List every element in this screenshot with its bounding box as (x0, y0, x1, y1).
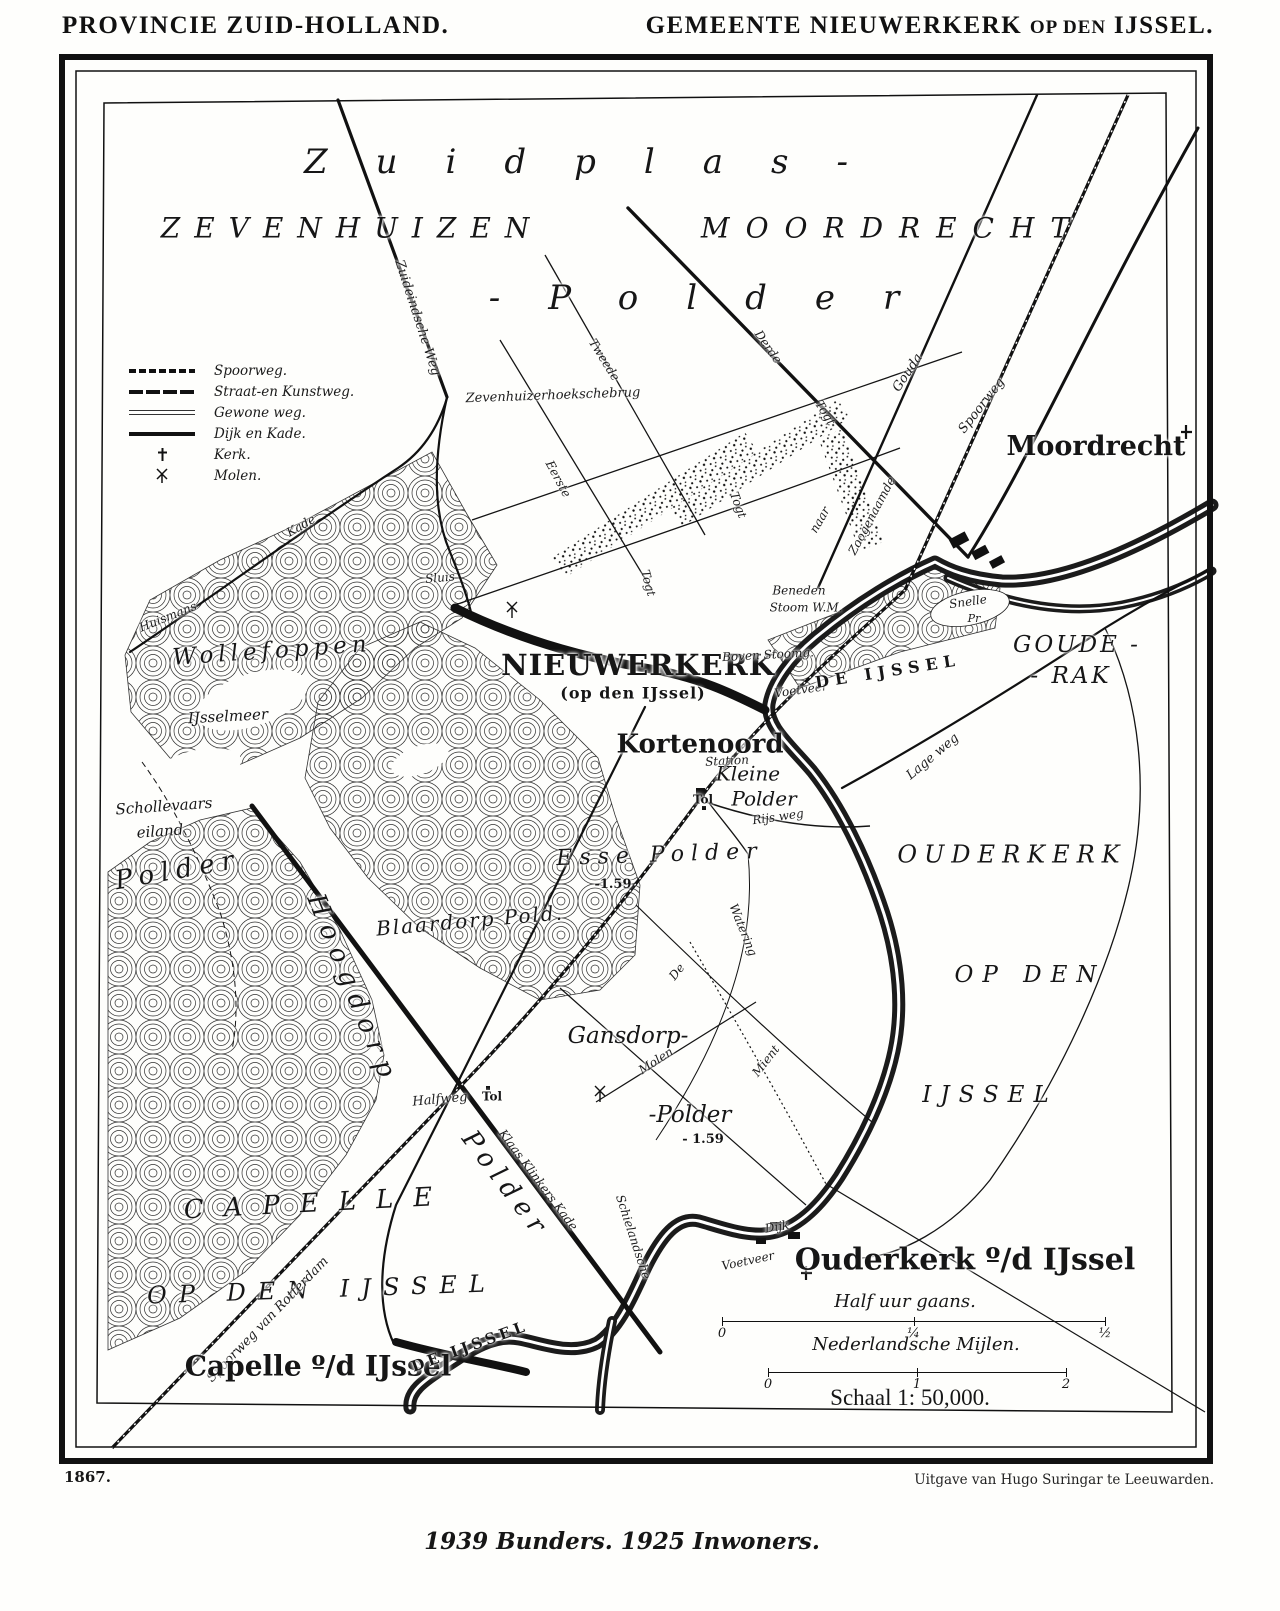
map-label: OP DEN (955, 963, 1106, 987)
map-label: Polder (113, 847, 243, 896)
map-label: Boven Stoomg. (722, 646, 814, 663)
scale-tick-label: ½ (1099, 1326, 1112, 1341)
map-label: -Polder (649, 1103, 732, 1127)
map-label: Halfweg (412, 1091, 468, 1109)
scale-bar-mijlen: 012 (768, 1365, 1066, 1381)
map-labels-layer: Zuidplas-ZEVENHUIZENMOORDRECHT-PolderZui… (0, 0, 1280, 1611)
map-label: Zoogenaamde (846, 475, 897, 557)
map-label: Pr (968, 613, 981, 625)
map-label: - RAK (1030, 664, 1111, 688)
map-label: Moordrecht (1007, 433, 1186, 461)
map-label: Togt (638, 568, 657, 597)
map-label: Gansdorp- (568, 1024, 689, 1048)
map-label: ZEVENHUIZEN (161, 213, 544, 242)
map-label: -Polder (489, 281, 947, 317)
publisher-credit: Uitgave van Hugo Suringar te Leeuwarden. (914, 1472, 1214, 1488)
map-label: Lage weg (904, 731, 962, 782)
map-label: (op den IJssel) (560, 686, 705, 703)
map-label: CAPELLE (183, 1183, 453, 1224)
map-label: Dijk (764, 1219, 790, 1236)
map-label: IJSSEL (922, 1083, 1057, 1107)
map-label: Kleine (716, 764, 780, 785)
map-label: GOUDE - (1013, 633, 1141, 657)
map-label: Derde (752, 328, 784, 366)
map-label: Sluis (425, 570, 456, 585)
scale-tick-label: 0 (718, 1326, 726, 1341)
map-label: Blaardorp Pold. (375, 902, 564, 939)
map-label: Huismans (138, 600, 199, 634)
map-label: Ouderkerk º/d IJssel (795, 1244, 1136, 1276)
map-label: Esse Polder (556, 840, 764, 870)
map-label: -1.59 (594, 878, 631, 892)
map-label: Eerste (543, 459, 573, 500)
area-population-stats: 1939 Bunders. 1925 Inwoners. (424, 1528, 820, 1555)
map-label: De (667, 962, 687, 983)
scale-title-mijlen: Nederlandsche Mijlen. (812, 1334, 1020, 1355)
map-label: Gouda (890, 352, 925, 395)
map-label: Beneden (772, 585, 825, 598)
map-label: Schollevaars (115, 796, 213, 818)
map-label: Tol (693, 794, 713, 807)
map-sheet: PROVINCIE ZUID-HOLLAND. GEMEENTE NIEUWER… (0, 0, 1280, 1611)
scale-title-hours: Half uur gaans. (834, 1291, 976, 1312)
map-label: Mient (750, 1043, 782, 1079)
map-label: Molen (637, 1045, 676, 1076)
map-label: Zevenhuizerhoekschebrug (465, 386, 640, 406)
map-label: Wollefoppen (172, 632, 373, 670)
map-label: Tweede (586, 337, 622, 383)
map-label: Snelle (948, 593, 987, 611)
map-label: Spoorweg (956, 376, 1008, 437)
map-label: IJsselmeer (188, 707, 269, 727)
map-label: DE IJSSEL (814, 652, 962, 692)
map-label: MOORDRECHT (701, 213, 1085, 242)
map-label: Zuidplas- (304, 145, 896, 181)
map-year: 1867. (64, 1468, 111, 1486)
map-label: Polder (731, 789, 796, 810)
map-label: Voetveer (721, 1249, 776, 1272)
map-label: Kade (284, 513, 317, 539)
map-label: DE IJSSEL (409, 1319, 530, 1376)
map-label: Watering (727, 902, 759, 958)
scale-bar-hours: 0¼½ (722, 1314, 1105, 1330)
map-label: Tol (482, 1091, 502, 1104)
scale-tick-label: 2 (1062, 1377, 1070, 1392)
map-label: Kortenoord (616, 731, 783, 758)
scale-ratio: Schaal 1: 50,000. (830, 1385, 990, 1411)
map-label: naar (808, 505, 833, 535)
map-label: Stoom W.M. (770, 602, 843, 615)
map-label: eiland (136, 823, 184, 842)
map-label: OUDERKERK (897, 842, 1126, 867)
map-label: - 1.59 (682, 1133, 724, 1147)
scale-tick-label: 0 (764, 1377, 772, 1392)
map-label: Zuideindsche Weg (392, 258, 442, 377)
map-label: Togt (727, 490, 748, 520)
map-label: Togt (813, 398, 838, 427)
map-label: OP DEN IJSSEL (147, 1271, 498, 1308)
map-label: Schielandsche (613, 1193, 652, 1280)
